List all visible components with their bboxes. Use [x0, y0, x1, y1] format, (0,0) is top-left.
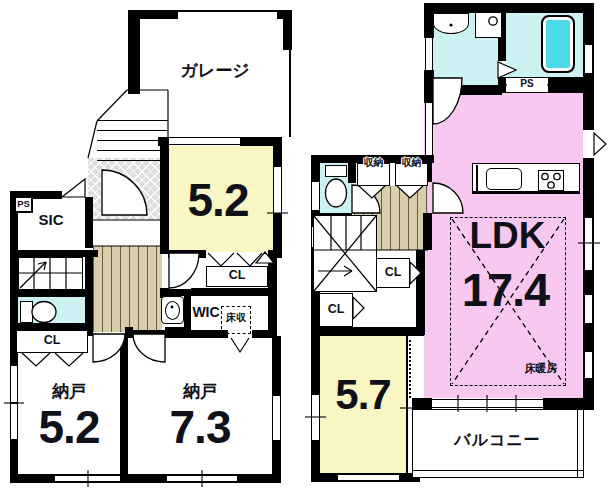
wic-label: WIC: [189, 305, 223, 320]
washing-machine: [475, 12, 502, 38]
washroom-window-left: [425, 38, 433, 70]
hall-1f-floor: [93, 246, 162, 332]
bath-window-right: [584, 45, 593, 73]
hall-column-wall: [85, 250, 93, 335]
storage-b-wall-right-a: [272, 336, 281, 396]
storage-b-wall-right-b: [272, 440, 281, 483]
storage-b-door-arc: [133, 334, 165, 362]
room57-sliding-door: [409, 340, 412, 398]
room57-balcony-line: [406, 336, 408, 476]
garage-wall-topleft: [128, 10, 178, 19]
ldk-wall-left-b: [416, 250, 425, 335]
room52-wall-bottom-a: [168, 250, 206, 258]
sic-entrance-divider: [85, 197, 93, 248]
storage-a-window-left-1: [10, 366, 18, 402]
balcony-wall-top: [543, 398, 594, 409]
toilet-2f-tank: [325, 165, 347, 177]
kitchen-counter-edge: [476, 165, 478, 192]
room52-window-top: [166, 137, 240, 145]
closet-toilet-fold-1: [22, 353, 50, 366]
balcony-label: バルコニー: [430, 432, 565, 449]
storage-a-window-bottom: [55, 475, 120, 482]
toilet2f-window-left: [311, 182, 320, 210]
washroom-wall-bottom: [460, 85, 502, 95]
wic-fold: [231, 338, 249, 352]
ldk-window-right-3: [584, 352, 593, 378]
ldk-door-gap-right: [583, 130, 594, 158]
wall-right-mid-1f: [268, 258, 277, 338]
closet-toilet-fold-2: [55, 353, 83, 366]
wall-top-2f: [424, 3, 594, 13]
storage-b-window-bottom: [167, 475, 237, 482]
wic-storage-band-b: [252, 330, 277, 338]
storage-right-label: 収納: [394, 158, 429, 169]
balcony-inner-line-right: [577, 409, 578, 478]
sic-door-triangle: [62, 179, 85, 197]
storage-left-label: 収納: [356, 158, 391, 169]
stairs-toilet-divider: [10, 289, 88, 297]
room52-wall-right-b: [273, 213, 282, 255]
closet-52-fold-2: [237, 253, 262, 266]
garage-wall-left: [128, 10, 140, 94]
wic-storage-band-a: [128, 330, 228, 338]
room-57-size: 5.7: [320, 373, 406, 417]
basin-top-wall: [160, 289, 191, 296]
washbasin-1f-bowl: [165, 301, 180, 320]
bathtub: [541, 15, 575, 73]
stairs-1f-frame: [18, 257, 83, 290]
garage-wall-right: [283, 10, 292, 50]
washbasin-2f: [433, 13, 469, 34]
floor-storage-label: 床収: [221, 313, 251, 324]
closet-toilet-label: CL: [16, 334, 88, 347]
kitchen-stove: [538, 170, 564, 191]
closet-52-label: CL: [206, 269, 268, 282]
ldk-exterior-door-triangle: [594, 133, 606, 155]
storage-a-name: 納戸: [19, 383, 119, 401]
entrance-hatch: [88, 158, 162, 220]
ldk-wall-left-a2: [423, 213, 432, 250]
floor-heating-label: 床暖房: [516, 363, 566, 375]
garage-opening-line: [178, 10, 277, 12]
ldk-name: LDK: [440, 217, 575, 256]
closet-upper-label: CL: [376, 266, 410, 279]
storage-b-name: 納戸: [150, 383, 250, 401]
wic-wall-top: [191, 288, 277, 296]
storage-a-size: 5.2: [9, 403, 129, 451]
balcony-inner-line-bottom: [412, 470, 584, 471]
toilet-1f-tank: [20, 301, 33, 323]
ldk-size: 17.4: [428, 265, 583, 314]
closet-52-fold-1: [208, 253, 234, 266]
ps-label-1f: PS: [14, 199, 33, 209]
closet-lower-label: CL: [319, 303, 353, 316]
storage-b-window-right: [272, 396, 281, 440]
wall-bottom-1f: [10, 474, 281, 483]
washroom-wall-left-b: [424, 70, 434, 103]
stairs-2f-frame: [313, 215, 377, 292]
ldk-wall-bottomleft: [412, 398, 432, 409]
room-52-size: 5.2: [162, 176, 274, 224]
toilet2f-wall-right: [348, 163, 356, 183]
room57-wall-top: [311, 327, 424, 336]
storage-b-size: 7.3: [140, 403, 260, 451]
closet-lower-door-triangle: [353, 297, 364, 319]
kitchen-sink: [486, 168, 522, 190]
ldk-window-right-2: [584, 295, 593, 323]
floor-plan-canvas: ガレージ PS SIC CL 納戸 5.2 納戸 7.3 WIC 床収 CL 5…: [0, 0, 612, 494]
room52-window-right: [273, 167, 282, 213]
garage-edge-line: [289, 50, 291, 137]
room57-window-left: [311, 395, 320, 440]
room52-wall-bottom-b: [268, 250, 282, 258]
ldk-window-balcony: [432, 399, 543, 408]
garage-label: ガレージ: [160, 62, 270, 80]
ldk-window-left-upper: [425, 103, 433, 157]
sic-label: SIC: [28, 212, 74, 228]
ldk-window-right-1: [584, 218, 593, 270]
room57-window-bottom: [338, 474, 399, 481]
room52-wall-right-a: [273, 137, 282, 167]
ps-label-2f: PS: [508, 79, 546, 90]
room52-door-arc: [169, 253, 199, 288]
